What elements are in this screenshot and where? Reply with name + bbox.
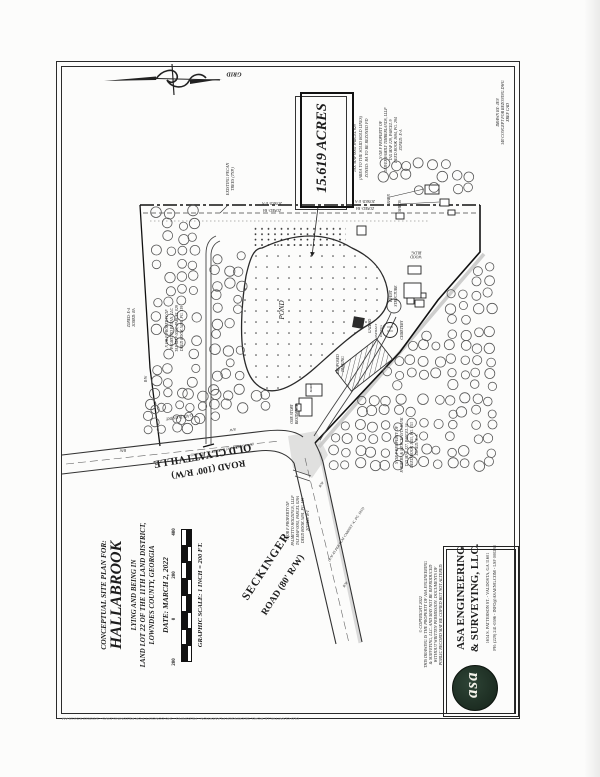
tree-symbol [419, 457, 429, 467]
tree-symbol [251, 391, 262, 402]
grid-north-label: GRID [222, 70, 246, 77]
tree-symbol [198, 402, 206, 410]
tree-symbol [431, 368, 441, 378]
acreage-note: ZONED: RA TO BE REZONED PD [365, 92, 370, 204]
tree-symbol [381, 449, 389, 457]
tree-symbol [487, 303, 497, 313]
tree-symbol [460, 459, 469, 468]
tree-symbol [186, 403, 194, 411]
tree-symbol [150, 418, 159, 427]
event-structure-label: EVENT [389, 276, 393, 316]
tree-symbol [381, 421, 390, 430]
tree-symbol [151, 312, 161, 322]
tree-symbol [369, 435, 378, 444]
tree-symbol [483, 288, 492, 297]
tree-symbol [432, 342, 440, 350]
title-line: LYING AND BEING IN [130, 510, 138, 680]
tree-symbol [472, 421, 481, 430]
zoning-label: ZONED: E-A [345, 198, 385, 202]
tree-symbol [162, 218, 172, 228]
tree-symbol [144, 426, 152, 434]
tree-symbol [474, 435, 483, 444]
tree-symbol [407, 368, 416, 377]
parcel-pecan-line: DEED BOOK 5491, PG. 119 [180, 286, 184, 371]
tree-symbol [238, 403, 248, 413]
tree-symbol [357, 433, 365, 441]
proposed-parking-label: PARKING [341, 347, 345, 381]
tree-symbol [176, 401, 184, 409]
tree-symbol [165, 272, 175, 282]
tree-symbol [461, 341, 471, 351]
tree-symbol [179, 235, 189, 245]
tree-symbol [459, 301, 467, 309]
tree-symbol [380, 460, 390, 470]
tree-symbol [356, 446, 366, 456]
tree-symbol [449, 420, 458, 429]
firm-name: & SURVEYING, LLC. [469, 524, 482, 672]
tree-symbol [178, 259, 187, 268]
barn-label: BARN [387, 192, 391, 206]
scale-tick: 200 [172, 569, 178, 581]
acreage-note: (AREA TO THE SOLID BOLD LINES) [359, 92, 364, 204]
tree-symbol [235, 371, 244, 380]
tree-symbol [212, 330, 221, 339]
tree-symbol [485, 276, 495, 286]
tree-symbol [485, 369, 495, 379]
parcel-fmb-line: TAX MAP 127, PARCEL 34 [405, 405, 409, 485]
tree-symbol [192, 313, 201, 322]
plan-date: DATE: MARCH 2, 2022 [162, 510, 171, 680]
tree-symbol [436, 396, 445, 405]
tree-symbol [452, 171, 462, 181]
tree-symbol [163, 231, 173, 241]
tree-symbol [453, 184, 462, 193]
tree-symbol [456, 407, 466, 417]
tree-symbol [237, 252, 245, 260]
tree-symbol [188, 271, 198, 281]
tree-symbol [448, 315, 457, 324]
scale-bar-cell [187, 629, 193, 646]
tree-symbol [472, 277, 481, 286]
tree-symbol [405, 355, 415, 365]
scale-bar [181, 529, 193, 662]
parcel-fmb-line: FARMERS & MERCHANTS BANK [400, 405, 404, 485]
tree-symbol [461, 330, 471, 340]
scale-caption: GRAPHIC SCALE: 1 INCH = 200 FT. [197, 510, 204, 680]
pond-label: POND [278, 290, 286, 330]
tree-symbol [433, 460, 442, 469]
tree-symbol [367, 422, 377, 432]
tree-symbol [261, 401, 270, 410]
tree-symbol [153, 366, 162, 375]
tree-symbol [189, 349, 199, 359]
scale-bar-cell [187, 595, 193, 612]
tree-symbol [187, 377, 197, 387]
tree-symbol [163, 379, 172, 388]
tree-symbol [435, 357, 445, 367]
tree-symbol [446, 396, 455, 405]
tree-symbol [432, 446, 440, 454]
parcel-holdings-line: PALMETTO HOLDINGS, LLLP [291, 473, 295, 568]
tree-symbol [189, 218, 199, 228]
tree-symbol [213, 303, 222, 312]
tree-symbol [488, 410, 496, 418]
tree-symbol [152, 376, 162, 386]
tree-symbol [488, 420, 497, 429]
tree-symbol [474, 304, 484, 314]
tree-symbol [473, 267, 482, 276]
tree-symbol [342, 434, 352, 444]
tree-symbol [226, 359, 234, 367]
tree-symbol [329, 445, 339, 455]
parcel-holdings-line: DEED BOOK 5491, PG. 119 [301, 473, 305, 568]
tree-symbol [393, 381, 402, 390]
tree-symbol [459, 290, 468, 299]
tree-symbol [472, 291, 481, 300]
tree-symbol [441, 160, 450, 169]
tree-symbol [198, 391, 209, 402]
tree-symbol [473, 356, 482, 365]
asphalt-paving-label: PAVING [379, 316, 383, 346]
tree-symbol [221, 399, 231, 409]
north-arrow-icon [104, 64, 222, 95]
tree-symbol [369, 396, 379, 406]
tree-symbol [212, 319, 222, 329]
tree-symbol [474, 461, 485, 472]
tree-symbol [484, 327, 494, 337]
tree-symbol [484, 343, 494, 353]
tree-symbol [357, 407, 367, 417]
tree-symbol [225, 319, 234, 328]
tree-symbol [173, 423, 182, 432]
asa-logo-text: asa [462, 671, 482, 698]
tree-symbol [143, 411, 152, 420]
scale-tick: 400 [172, 526, 178, 538]
pecan-trees-label: TREES (TYP.) [231, 156, 236, 202]
tree-symbol [446, 354, 455, 363]
tree-symbol [434, 419, 443, 428]
tree-symbol [167, 247, 176, 256]
tree-symbol [420, 432, 428, 440]
event-structure-label: STRUCTURE [394, 276, 398, 316]
tree-symbol [189, 286, 197, 294]
zoning-label: ZONED: E-A [252, 200, 292, 204]
parcel-fmb-line: DEED BOOK 1453, PG. 153 [410, 405, 414, 485]
tree-symbol [422, 444, 432, 454]
tree-symbol [192, 336, 202, 346]
tree-symbol [370, 461, 380, 471]
tree-symbol [445, 304, 455, 314]
tree-symbol [470, 380, 479, 389]
tree-symbol [188, 261, 197, 270]
tree-symbol [483, 434, 492, 443]
tree-symbol [234, 305, 243, 314]
tree-symbol [396, 394, 406, 404]
tree-symbol [471, 368, 480, 377]
zoning-label: ZONED: RA [132, 295, 136, 340]
tree-symbol [151, 207, 162, 218]
tree-symbol [154, 299, 162, 307]
tree-symbol [261, 390, 270, 399]
tree-symbol [461, 356, 470, 365]
tree-symbol [221, 369, 231, 379]
tree-symbol [413, 158, 423, 168]
rw-label: R/W [144, 372, 148, 386]
tree-symbol [382, 433, 391, 442]
tree-symbol [223, 346, 233, 356]
scale-bar-cell [187, 546, 193, 563]
firm-phone: PH: (229) 241-0596 - INFO@ASAENG.COM - L… [493, 518, 498, 678]
title-line: LAND LOT 22 OF THE 11TH LAND DISTRICT, [139, 510, 147, 680]
scale-bar-cell [187, 645, 193, 662]
tree-symbol [341, 422, 349, 430]
tree-symbol [472, 405, 481, 414]
tree-symbol [213, 255, 222, 264]
sheds-label: SHEDS [398, 197, 402, 215]
tree-symbol [461, 371, 469, 379]
tree-symbol [419, 340, 429, 350]
scale-bar-cell [187, 562, 193, 579]
tree-symbol [183, 389, 194, 400]
parcel-oliver-line: DEED BOOK 1694, PG. 294 [394, 105, 398, 175]
tree-symbol [484, 397, 493, 406]
tree-symbol [341, 461, 349, 469]
tree-symbol [487, 358, 496, 367]
project-title: HALLABROOK [108, 510, 126, 680]
firm-name: ASA ENGINEERING [455, 524, 468, 672]
parcel-oliver-line: TAX MAP 129, PARCEL 9 [389, 105, 393, 175]
firm-address: 1634 S. PATTERSON ST. - VALDOSTA, GA 316… [486, 518, 491, 678]
tree-symbol [475, 328, 484, 337]
tree-symbol [151, 245, 161, 255]
tree-symbol [472, 344, 482, 354]
parcel-fmb-line: ZONED: E-A [415, 405, 419, 485]
plot-stamp: OLD CLYATTVILLE ROAD, SECKINGER PLANTATI… [58, 716, 303, 720]
zoning-label: ZONED: RA [345, 205, 385, 209]
cad-note: XREF CAD [506, 65, 511, 160]
tree-symbol [151, 324, 161, 334]
cemetery-label: CEMETERY [400, 313, 404, 347]
tree-symbol [464, 172, 474, 182]
tree-symbol [152, 260, 161, 269]
parcel-oliver-line: OLIVER FAMILY TIMBERLANDS, LLLP [384, 105, 388, 175]
scale-tick: 0 [172, 613, 178, 625]
tree-symbol [396, 371, 404, 379]
tree-symbol [444, 340, 454, 350]
parcel-oliver-line: ZONED: E-A [399, 105, 403, 175]
parcel-oliver-line: N OR F PROPERTY OF [379, 105, 383, 175]
tree-symbol [211, 412, 220, 421]
barn2-label: BARN [309, 382, 313, 394]
tree-symbol [178, 246, 187, 255]
tree-symbol [473, 394, 483, 404]
tree-symbol [190, 245, 200, 255]
parcel-fmb-line: N OR F PROPERTY OF [395, 405, 399, 485]
scale-bar-cell [187, 529, 193, 546]
tree-symbol [418, 356, 428, 366]
tree-symbol [164, 388, 172, 396]
tree-symbol [164, 209, 174, 219]
tree-symbol [458, 446, 469, 457]
zoning-label: ZONED: E-A [127, 295, 131, 340]
tree-symbol [367, 405, 377, 415]
scanned-site-plan-page: GRID 15.619 ACRES TAX MAP 0092 PARCEL 02… [0, 0, 600, 777]
gazebo-label: GAZEBO [368, 311, 372, 341]
tree-symbol [448, 458, 458, 468]
tree-symbol [437, 171, 448, 182]
tree-symbol [484, 457, 493, 466]
tree-symbol [225, 278, 235, 288]
residence-label: ONE STORY [290, 397, 294, 431]
tree-symbol [188, 233, 196, 241]
tree-symbol [486, 263, 494, 271]
parcel-holdings-line: ZONED: R-1 [306, 473, 310, 568]
tree-symbol [418, 394, 429, 405]
proposed-parking-label: PROPOSED [336, 347, 340, 381]
asphalt-paving-label: ASPHALT [374, 316, 378, 346]
tree-symbol [192, 364, 200, 372]
tree-symbol [179, 222, 187, 230]
rw-label: R/W [116, 447, 130, 451]
tree-symbol [150, 388, 160, 398]
zoning-label: ZONED: RA [252, 207, 292, 211]
parcel-pecan-line: TAX MAP 0092, PARCEL 029 [175, 286, 179, 371]
tree-symbol [464, 183, 473, 192]
parcel-pecan-line: PALMETTO PECAN, LLC [170, 286, 174, 371]
tree-symbol [182, 423, 192, 433]
residence-label: RESIDENCE [295, 397, 299, 431]
tree-symbol [356, 458, 366, 468]
wood-bldg-label: WOOD BLDG. [403, 250, 429, 258]
scale-bar-cell [187, 579, 193, 596]
tree-symbol [428, 160, 438, 170]
tree-symbol [409, 341, 418, 350]
tree-symbol [329, 461, 338, 470]
tree-symbol [446, 432, 455, 441]
tree-symbol [448, 379, 458, 389]
tree-symbol [462, 315, 471, 324]
tree-symbol [177, 272, 187, 282]
tree-symbol [355, 420, 365, 430]
wood-bldg-line: BLDG. [411, 250, 422, 254]
tree-symbol [419, 370, 428, 379]
tree-symbol [448, 330, 457, 339]
tree-symbol [487, 449, 496, 458]
tree-symbol [234, 295, 242, 303]
tree-symbol [488, 382, 496, 390]
tree-symbol [178, 388, 188, 398]
tree-symbol [331, 434, 339, 442]
parcel-holdings-line: N OR F PROPERTY OF [286, 473, 290, 568]
tree-symbol [420, 419, 429, 428]
title-line: LOWNDES COUNTY, GEORGIA [148, 510, 156, 680]
tree-symbol [188, 205, 199, 216]
wood-bldg-line: WOOD [410, 254, 421, 258]
acreage-note: TAX MAP 0092 PARCEL 029 [353, 92, 358, 204]
tree-symbol [448, 369, 456, 377]
scale-bar-cell [187, 612, 193, 629]
tree-symbol [460, 393, 470, 403]
tree-symbol [234, 384, 244, 394]
tree-symbol [395, 357, 404, 366]
tree-symbol [365, 447, 375, 457]
scale-tick: 200 [172, 656, 178, 668]
acreage-value: 15.619 ACRES [314, 96, 331, 200]
tree-symbol [342, 448, 351, 457]
parcel-pecan-line: N OR F PROPERTY OF [165, 286, 169, 371]
tree-symbol [448, 448, 457, 457]
